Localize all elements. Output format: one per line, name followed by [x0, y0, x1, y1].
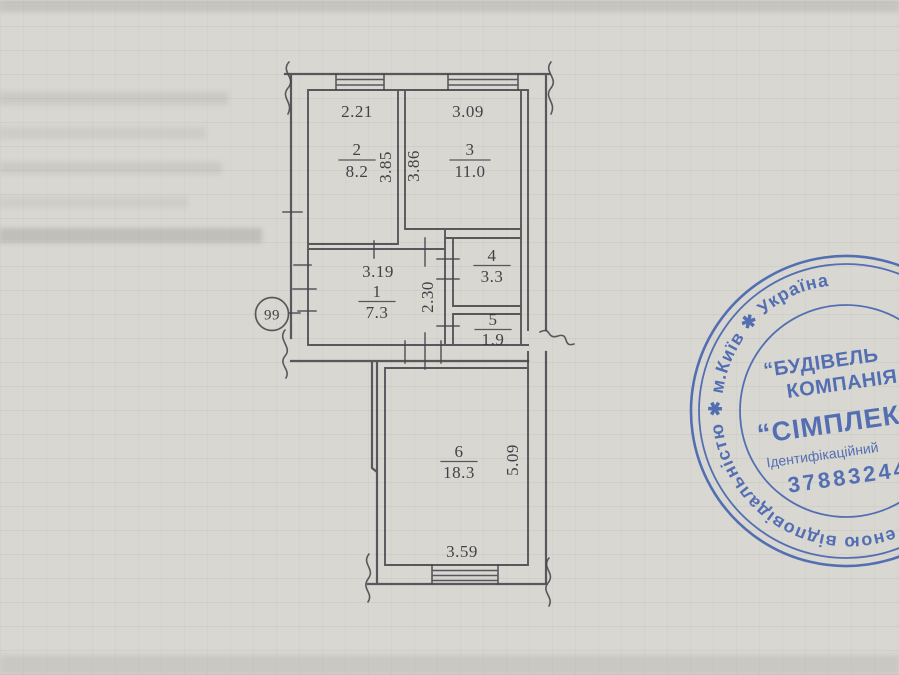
room-5-area: 1.9: [482, 330, 505, 349]
company-stamp: еною відповідальністю ✱ м.Київ ✱ Україна…: [0, 0, 899, 675]
dim-room3-depth: 3.86: [404, 150, 423, 182]
room-6-area: 18.3: [443, 463, 475, 482]
dim-hall-width: 3.19: [362, 262, 394, 281]
room-2-area: 8.2: [346, 162, 369, 181]
dim-room6-width: 3.59: [446, 542, 478, 561]
floor-plan-svg: 99 2.21 3.09 3.85 3.86 3.19 2.30 5.09 3.…: [0, 0, 899, 675]
apartment-number: 99: [264, 308, 280, 324]
dim-room2-depth: 3.85: [376, 151, 395, 183]
floor-plan: [256, 62, 575, 606]
room-4-number: 4: [488, 246, 497, 265]
room-4-area: 3.3: [481, 267, 504, 286]
dim-room6-depth: 5.09: [503, 444, 522, 476]
floor-plan-labels: 99 2.21 3.09 3.85 3.86 3.19 2.30 5.09 3.…: [264, 102, 522, 561]
wall-break-marks: [283, 62, 574, 606]
room-2-number: 2: [353, 140, 362, 159]
scanned-floor-plan-page: 99 2.21 3.09 3.85 3.86 3.19 2.30 5.09 3.…: [0, 0, 899, 675]
room-3-number: 3: [466, 140, 475, 159]
room-5-number: 5: [489, 310, 498, 329]
stamp-center-text: “БУДІВЕЛЬ КОМПАНІЯ “СІМПЛЕКС-С Ідентифік…: [747, 335, 899, 501]
dim-hall-depth: 2.30: [418, 281, 437, 313]
room-6-number: 6: [455, 442, 464, 461]
dim-room3-width: 3.09: [452, 102, 484, 121]
room-3-area: 11.0: [454, 162, 485, 181]
room-1-number: 1: [373, 282, 382, 301]
stamp-ring-text: еною відповідальністю ✱ м.Київ ✱ Україна: [0, 0, 899, 670]
room-1-area: 7.3: [366, 303, 389, 322]
dim-room2-width: 2.21: [341, 102, 373, 121]
